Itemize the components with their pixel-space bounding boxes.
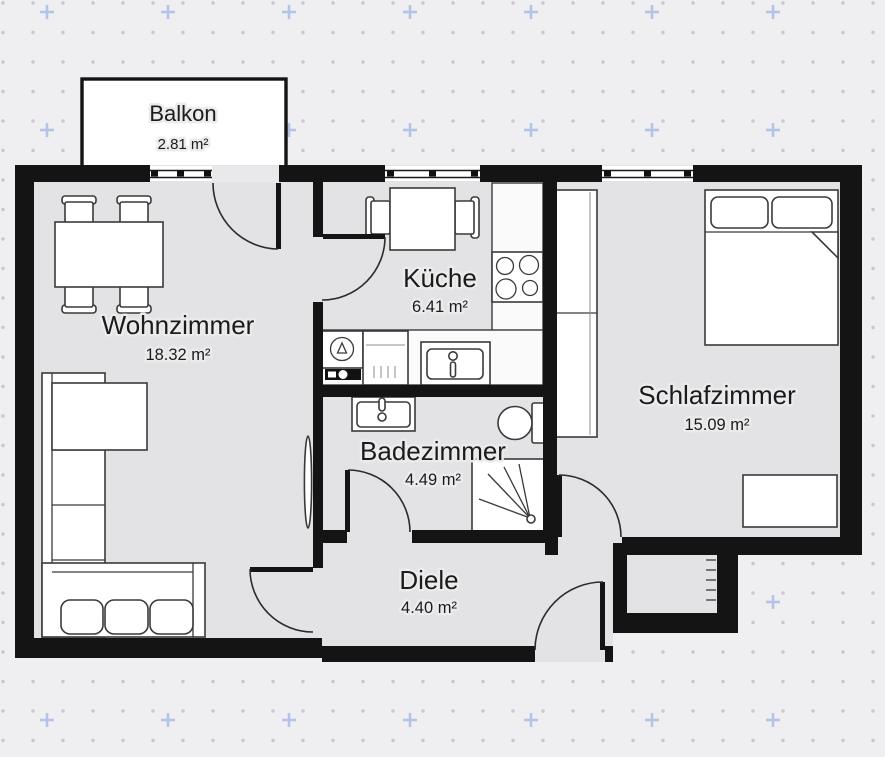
label-schlafzimmer: Schlafzimmer	[638, 380, 796, 410]
sofa-cushion	[150, 600, 193, 634]
wardrobe	[553, 190, 597, 437]
washing-machine	[322, 331, 363, 380]
sofa-cushion	[105, 600, 148, 634]
label-balkon: Balkon	[149, 101, 216, 126]
area-kueche: 6.41 m²	[412, 298, 468, 316]
shower	[472, 459, 546, 531]
kitchen-window	[385, 166, 480, 181]
sofa-cushion	[61, 600, 103, 634]
area-wohnzimmer: 18.32 m²	[145, 346, 211, 364]
pillow	[772, 197, 832, 228]
dishwasher	[363, 331, 408, 385]
kitchen-table	[390, 188, 455, 250]
double-bed	[705, 190, 838, 345]
balcony-door-opening	[212, 166, 279, 182]
area-balkon: 2.81 m²	[158, 136, 209, 153]
kitchen-chair	[366, 197, 390, 238]
area-badezimmer: 4.49 m²	[405, 471, 461, 489]
area-diele: 4.40 m²	[401, 599, 457, 617]
balcony-window	[150, 166, 212, 181]
dining-table	[55, 222, 163, 287]
duct-shaft-interior	[627, 555, 717, 613]
sofa-chaise	[52, 383, 147, 450]
kitchen-sink	[421, 342, 490, 385]
area-schlafzimmer: 15.09 m²	[684, 416, 750, 434]
label-badezimmer: Badezimmer	[360, 436, 506, 466]
kitchen-counter-bottom	[322, 330, 543, 385]
pillow	[711, 197, 768, 228]
kitchen-chair	[455, 197, 479, 238]
label-wohnzimmer: Wohnzimmer	[102, 310, 255, 340]
bedroom-window	[602, 166, 693, 181]
label-diele: Diele	[399, 565, 458, 595]
floor-plan-svg: Balkon 2.81 m² Wohnzimmer 18.32 m² Küche…	[0, 0, 885, 757]
radiator	[304, 436, 311, 528]
dresser	[743, 475, 837, 527]
shower-drain	[527, 515, 535, 523]
bathroom-sink	[352, 397, 415, 431]
label-kueche: Küche	[403, 263, 477, 293]
floor-plan-stage: Balkon 2.81 m² Wohnzimmer 18.32 m² Küche…	[0, 0, 885, 757]
